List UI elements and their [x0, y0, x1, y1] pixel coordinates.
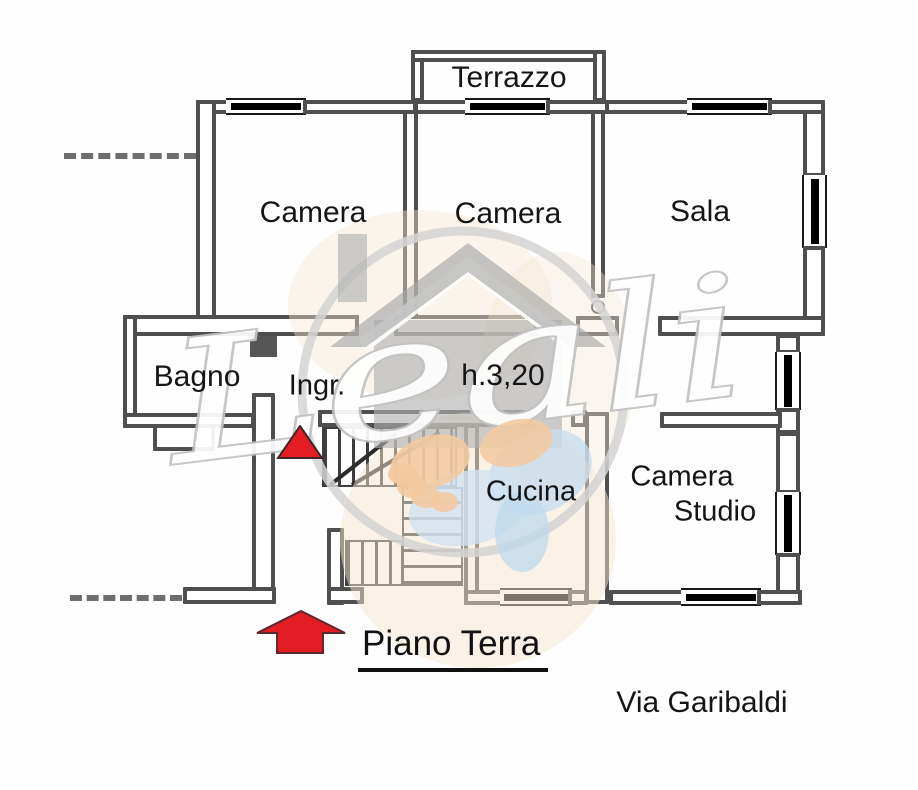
- wall-segment: [568, 590, 588, 605]
- stairs-small-flight: [345, 540, 403, 586]
- entrance-arrow-icon: [256, 610, 346, 654]
- boundary-dashed-line: [64, 153, 196, 159]
- wall-segment: [153, 424, 215, 451]
- window: [775, 352, 801, 410]
- floor-plan: Leali Terrazzo Camera Camera Sala Bagno …: [0, 0, 918, 790]
- wall-segment: [776, 334, 800, 354]
- wall-segment: [123, 315, 137, 428]
- wall-segment: [303, 100, 417, 114]
- room-label-ingresso: Ingr.: [289, 370, 345, 403]
- wall-segment: [585, 412, 609, 604]
- wall-segment: [658, 316, 825, 336]
- street-label: Via Garibaldi: [616, 686, 787, 720]
- window: [775, 492, 801, 555]
- stairs-lower-flight: [402, 487, 463, 586]
- wall-segment: [593, 50, 606, 102]
- window: [681, 588, 761, 606]
- window: [802, 175, 827, 248]
- wall-segment: [403, 110, 418, 320]
- wall-segment: [123, 315, 359, 336]
- boundary-dashed-line: [70, 595, 182, 601]
- room-label-camera-studio-line1: Camera: [630, 461, 733, 494]
- floor-title: Piano Terra: [358, 624, 548, 672]
- wall-segment: [609, 590, 685, 605]
- wall-segment: [196, 100, 216, 328]
- ingresso-arrow-icon: [276, 425, 324, 460]
- wall-pillar: [250, 336, 277, 357]
- door-swing: [591, 300, 605, 314]
- wall-segment: [394, 315, 538, 336]
- window: [687, 98, 772, 115]
- room-label-sala: Sala: [670, 195, 730, 229]
- wall-segment: [660, 412, 782, 428]
- wall-segment: [183, 587, 276, 604]
- wall-segment: [757, 590, 802, 605]
- wall-segment: [803, 110, 825, 177]
- wall-segment: [327, 587, 364, 604]
- window: [465, 98, 550, 115]
- wall-segment: [252, 393, 275, 595]
- wall-segment: [464, 424, 479, 594]
- wall-segment: [576, 316, 619, 336]
- wall-segment: [605, 100, 691, 114]
- wall-segment: [318, 410, 533, 427]
- room-label-camera-1: Camera: [260, 196, 367, 230]
- room-label-camera-2: Camera: [455, 197, 562, 231]
- wall-segment: [571, 410, 587, 427]
- room-label-terrazzo: Terrazzo: [451, 61, 566, 95]
- ceiling-height-label: h.3,20: [461, 359, 544, 393]
- window: [500, 588, 572, 606]
- wall-segment: [776, 432, 800, 494]
- room-label-cucina: Cucina: [486, 476, 576, 509]
- room-label-bagno: Bagno: [154, 360, 241, 394]
- wall-segment: [591, 110, 605, 298]
- wall-segment: [414, 100, 469, 114]
- room-label-camera-studio-line2: Studio: [674, 496, 756, 529]
- window: [226, 98, 306, 115]
